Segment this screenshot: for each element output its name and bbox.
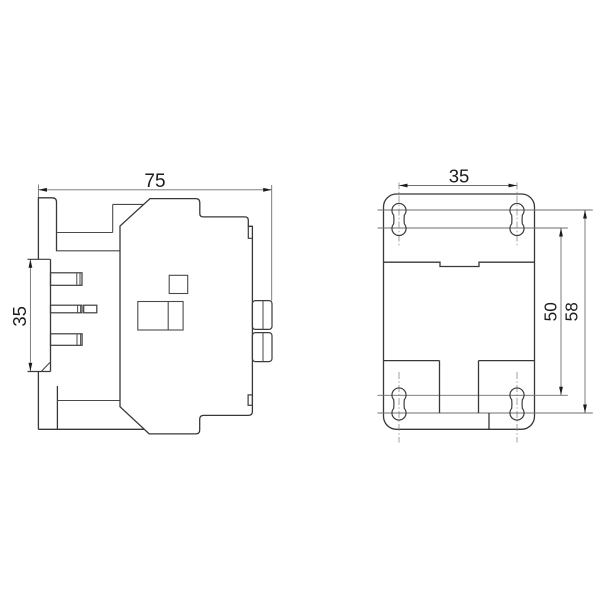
svg-text:35: 35 <box>9 306 30 327</box>
svg-text:35: 35 <box>449 166 470 187</box>
svg-text:75: 75 <box>144 171 165 192</box>
svg-text:58: 58 <box>562 302 582 321</box>
svg-text:50: 50 <box>541 302 561 321</box>
